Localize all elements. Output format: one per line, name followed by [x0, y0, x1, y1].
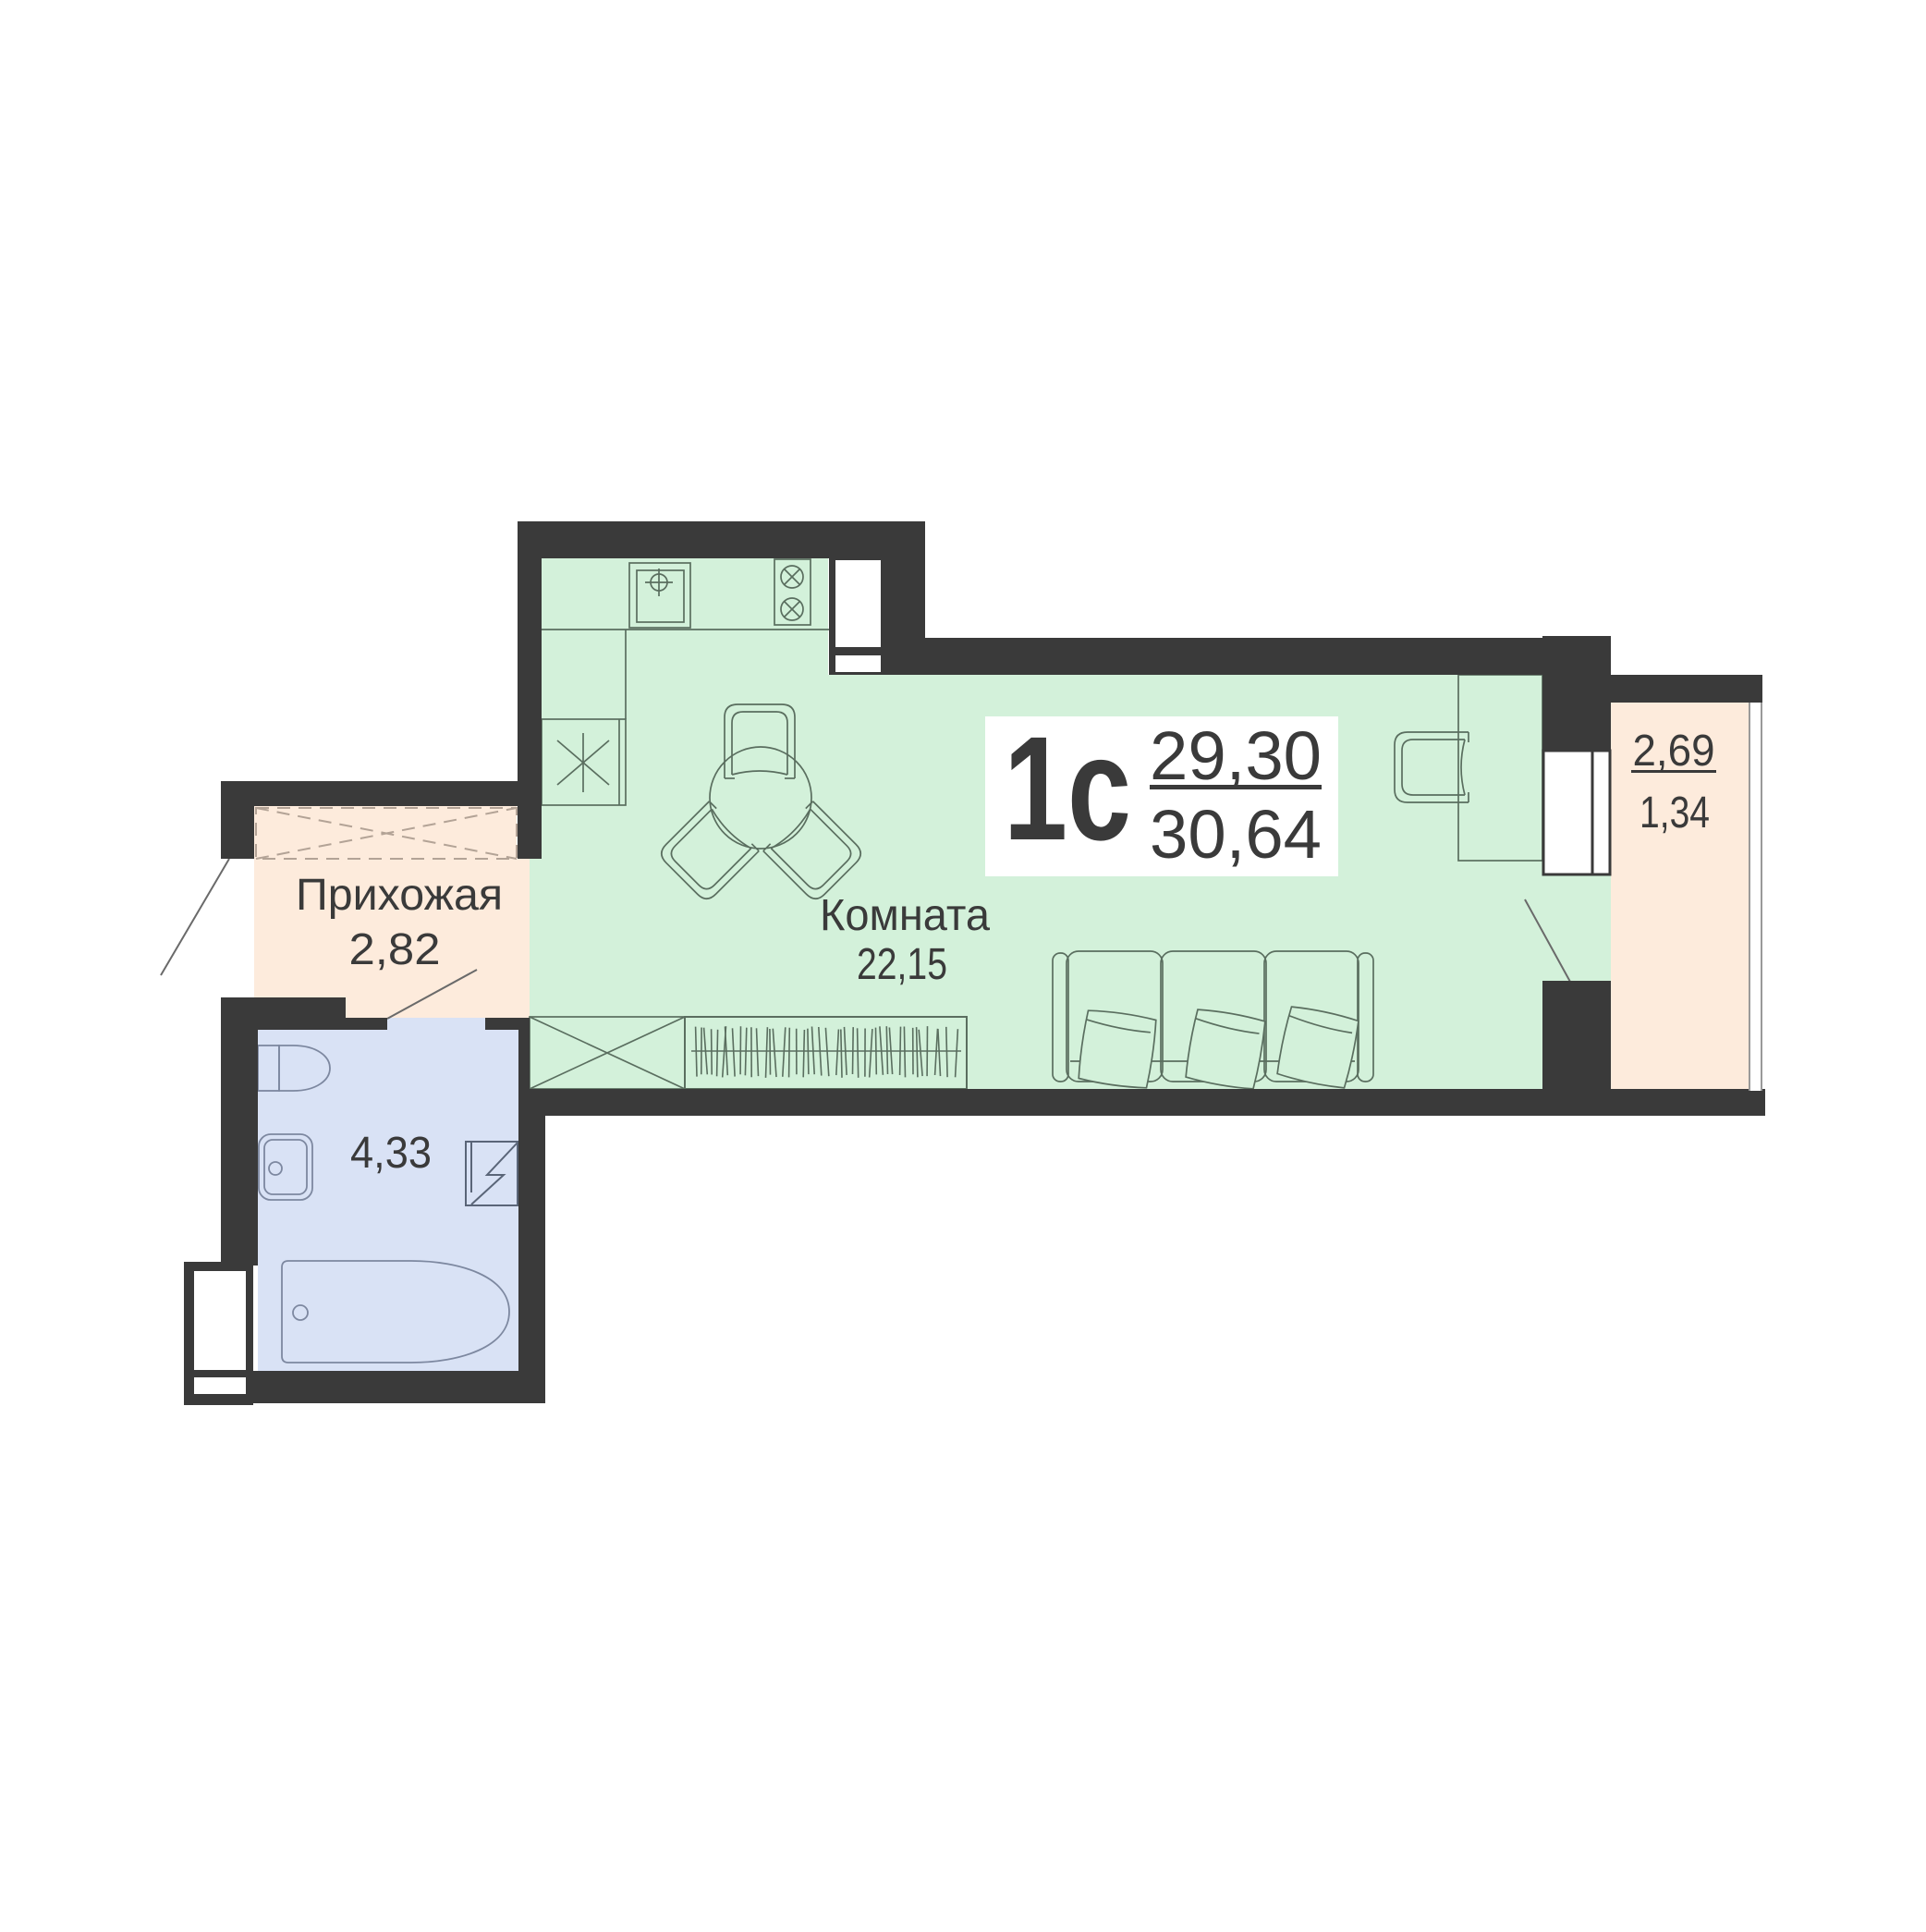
svg-text:4,33: 4,33: [350, 1129, 432, 1178]
svg-text:Комната: Комната: [820, 891, 990, 940]
svg-text:2,82: 2,82: [349, 925, 441, 974]
svg-text:29,30: 29,30: [1150, 717, 1322, 794]
svg-text:2,69: 2,69: [1633, 727, 1715, 776]
svg-text:Прихожая: Прихожая: [296, 871, 503, 920]
svg-text:30,64: 30,64: [1150, 796, 1322, 873]
svg-text:1,34: 1,34: [1640, 789, 1710, 838]
svg-text:22,15: 22,15: [857, 940, 947, 989]
svg-text:1с: 1с: [1004, 705, 1131, 871]
